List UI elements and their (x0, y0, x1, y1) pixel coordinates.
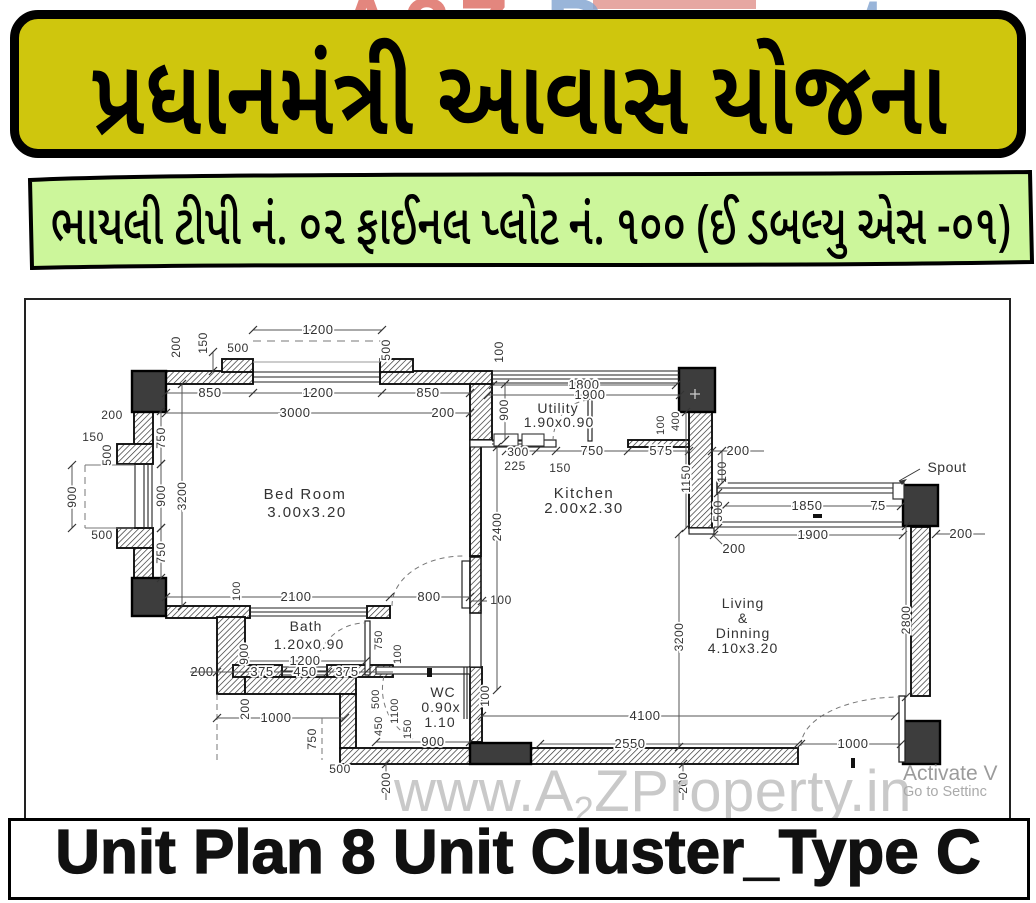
svg-text:750: 750 (154, 427, 168, 449)
svg-text:WC: WC (430, 684, 455, 700)
svg-text:2.00x2.30: 2.00x2.30 (544, 500, 623, 517)
svg-text:900: 900 (154, 485, 168, 507)
svg-text:Dinning: Dinning (716, 625, 770, 641)
svg-text:Bath: Bath (290, 618, 323, 634)
svg-text:500: 500 (329, 762, 351, 776)
svg-text:400: 400 (670, 411, 682, 431)
svg-text:450: 450 (373, 716, 385, 736)
svg-text:450: 450 (293, 664, 316, 679)
svg-text:1900: 1900 (575, 387, 606, 402)
svg-text:1.10: 1.10 (424, 714, 455, 730)
svg-text:2550: 2550 (615, 736, 646, 751)
svg-text:225: 225 (504, 459, 526, 473)
svg-text:900: 900 (421, 734, 444, 749)
svg-text:500: 500 (227, 341, 249, 355)
svg-text:200: 200 (726, 443, 749, 458)
svg-text:750: 750 (305, 728, 319, 750)
svg-text:800: 800 (417, 589, 440, 604)
svg-text:300: 300 (507, 445, 529, 459)
svg-text:375: 375 (335, 664, 358, 679)
svg-text:1200: 1200 (303, 322, 334, 337)
svg-text:900: 900 (237, 643, 251, 665)
svg-text:1850: 1850 (792, 498, 823, 513)
svg-text:2800: 2800 (899, 606, 913, 635)
svg-text:4.10x3.20: 4.10x3.20 (708, 640, 779, 656)
svg-text:&: & (738, 610, 748, 626)
svg-text:200: 200 (949, 526, 972, 541)
svg-text:500: 500 (379, 339, 393, 361)
svg-text:1200: 1200 (303, 385, 334, 400)
svg-text:100: 100 (490, 593, 512, 607)
svg-text:200: 200 (431, 405, 454, 420)
svg-text:150: 150 (549, 461, 571, 475)
svg-text:575: 575 (649, 443, 672, 458)
svg-text:Living: Living (722, 595, 765, 611)
svg-text:1.90x0.90: 1.90x0.90 (524, 414, 595, 430)
svg-text:100: 100 (655, 415, 667, 435)
svg-text:1100: 1100 (389, 698, 401, 724)
svg-text:100: 100 (492, 341, 506, 363)
svg-text:200: 200 (101, 408, 123, 422)
svg-text:900: 900 (497, 399, 511, 421)
svg-text:3200: 3200 (672, 623, 686, 652)
svg-text:150: 150 (82, 430, 104, 444)
svg-text:750: 750 (580, 443, 603, 458)
svg-text:3200: 3200 (175, 482, 189, 511)
svg-text:75: 75 (870, 498, 885, 513)
svg-text:500: 500 (91, 528, 113, 542)
svg-text:1900: 1900 (798, 527, 829, 542)
svg-text:1150: 1150 (679, 465, 693, 493)
svg-text:Bed Room: Bed Room (264, 486, 347, 503)
svg-text:0.90x: 0.90x (421, 699, 460, 715)
svg-text:Spout: Spout (927, 459, 966, 475)
svg-text:200: 200 (238, 698, 252, 720)
svg-text:150: 150 (196, 332, 210, 354)
svg-text:1.20x0.90: 1.20x0.90 (274, 636, 345, 652)
svg-text:750: 750 (154, 542, 168, 564)
svg-text:1000: 1000 (838, 736, 869, 751)
svg-text:850: 850 (416, 385, 439, 400)
svg-text:2100: 2100 (281, 589, 312, 604)
svg-text:200: 200 (722, 541, 745, 556)
svg-text:150: 150 (402, 719, 414, 739)
svg-text:2400: 2400 (490, 513, 504, 542)
svg-text:100: 100 (231, 581, 243, 601)
svg-text:200: 200 (169, 336, 183, 358)
svg-text:900: 900 (65, 486, 79, 508)
svg-text:750: 750 (373, 630, 385, 650)
svg-text:3.00x3.20: 3.00x3.20 (267, 504, 346, 521)
svg-text:100: 100 (478, 685, 492, 707)
svg-text:500: 500 (370, 689, 382, 709)
svg-text:375: 375 (250, 664, 273, 679)
svg-text:850: 850 (198, 385, 221, 400)
svg-text:4100: 4100 (630, 708, 661, 723)
svg-text:100: 100 (392, 644, 404, 664)
svg-text:1000: 1000 (261, 710, 292, 725)
svg-text:500: 500 (100, 444, 114, 466)
svg-text:200: 200 (379, 772, 393, 794)
svg-text:3000: 3000 (280, 405, 311, 420)
